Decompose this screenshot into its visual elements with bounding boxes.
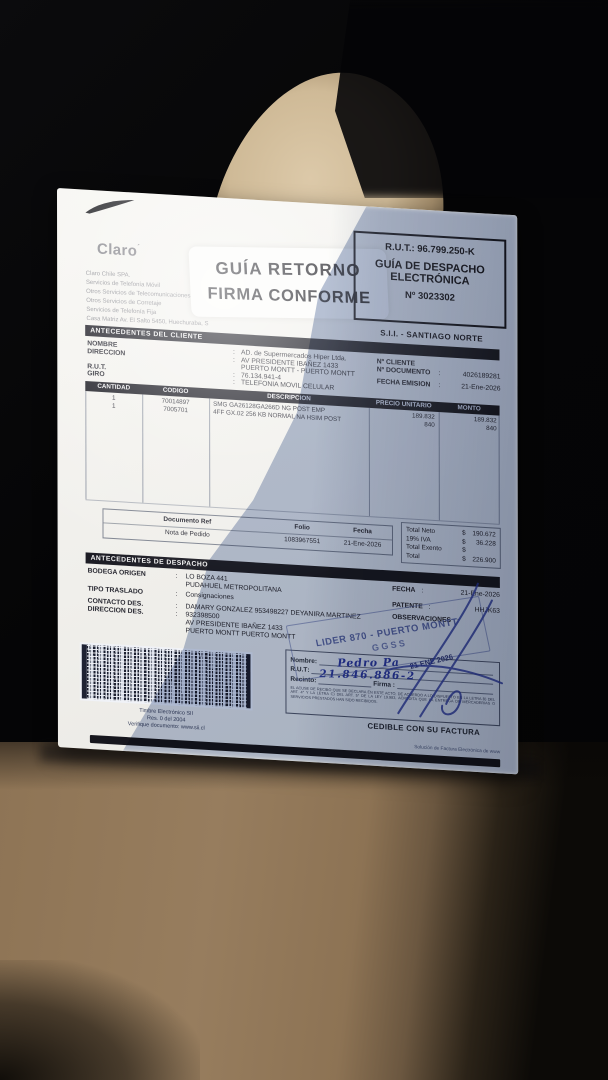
document-paper: Claro´ Claro Chile SPA. Servicios de Tel… [57, 188, 518, 774]
separator: : [176, 611, 178, 618]
barcode-bars [82, 644, 251, 708]
separator: : [175, 591, 177, 598]
emission-date-value: 21-Ene-2026 [461, 383, 500, 392]
client-row-label: GIRO [87, 370, 104, 378]
separator: : [438, 382, 440, 389]
currency-sign: $ [458, 555, 470, 564]
claro-logo-text: Claro [97, 240, 137, 259]
sticker-line-firma-conforme: FIRMA CONFORME [207, 285, 371, 309]
total-value: 226.900 [470, 556, 496, 566]
dispatch-label: TIPO TRASLADO [88, 586, 143, 596]
issuer-rut: R.U.T.: 96.799.250-K [356, 240, 505, 260]
photo-background: Claro´ Claro Chile SPA. Servicios de Tel… [0, 0, 608, 1080]
separator: : [233, 349, 235, 356]
dispatch-value: Consignaciones [185, 591, 233, 601]
document-number-value: 4026189281 [463, 371, 501, 380]
claro-logo-mark: ´ [137, 243, 140, 252]
claro-logo: Claro´ [97, 240, 140, 260]
ref-fecha-value: 21-Ene-2026 [333, 539, 392, 550]
rut-box: R.U.T.: 96.799.250-K GUÍA DE DESPACHO EL… [354, 231, 507, 329]
sii-pdf417-barcode [80, 642, 253, 710]
ref-header-folio: Folio [271, 522, 333, 533]
col-cantidad: CANTIDAD [85, 381, 142, 394]
sticker-line-guia-retorno: GUÍA RETORNO [215, 259, 361, 281]
emission-date-row: FECHA EMISION : 21-Ene-2026 [377, 378, 501, 392]
separator: : [233, 379, 235, 386]
separator: : [438, 370, 440, 377]
ref-header-fecha: Fecha [333, 526, 392, 537]
separator: : [233, 371, 235, 378]
total-label: Total [406, 552, 458, 564]
pen-mark-icon [83, 196, 145, 220]
doc-number: Nº 3023302 [356, 287, 505, 307]
separator: : [233, 356, 235, 363]
separator: : [176, 603, 178, 610]
sii-seal-text: Timbre Electrónico SII Res. 0 del 2004 V… [80, 704, 253, 736]
ref-folio-value: 1083967551 [271, 535, 333, 546]
totals-box: Total Neto $ 190.672 19% IVA $ 36.228 To… [401, 522, 501, 569]
separator: : [175, 573, 177, 580]
seat-shadow-corner [0, 960, 200, 1080]
signature-scrawl [380, 572, 508, 728]
